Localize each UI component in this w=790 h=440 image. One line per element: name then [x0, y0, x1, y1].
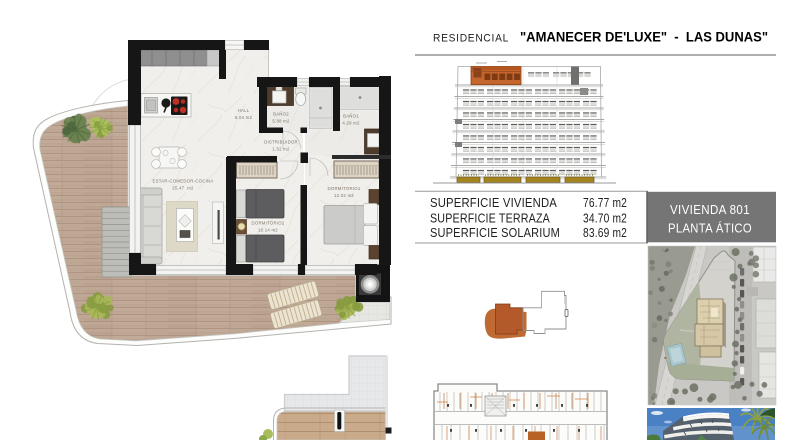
- svg-text:25.47 m2: 25.47 m2: [172, 186, 194, 191]
- svg-text:10.14 m2: 10.14 m2: [258, 228, 278, 233]
- svg-text:HALL: HALL: [238, 108, 250, 113]
- svg-text:4.29 m2: 4.29 m2: [342, 121, 360, 126]
- svg-text:SUPERFICIE SOLARIUM: SUPERFICIE SOLARIUM: [430, 226, 560, 240]
- svg-text:DORMITORIO2: DORMITORIO2: [252, 221, 285, 226]
- svg-text:VIVIENDA 801: VIVIENDA 801: [670, 202, 750, 217]
- svg-text:12.02 m2: 12.02 m2: [334, 193, 354, 198]
- svg-text:ESTAR-COMEDOR-COCINA: ESTAR-COMEDOR-COCINA: [152, 179, 213, 184]
- svg-text:PLANTA ÁTICO: PLANTA ÁTICO: [668, 221, 752, 236]
- svg-text:DISTRIBUIDOR: DISTRIBUIDOR: [264, 140, 298, 145]
- svg-text:DORMITORIO1: DORMITORIO1: [328, 186, 361, 191]
- svg-text:5.04 m2: 5.04 m2: [235, 115, 253, 120]
- svg-text:76.77 m2: 76.77 m2: [583, 196, 627, 210]
- svg-text:RESIDENCIAL: RESIDENCIAL: [433, 33, 509, 45]
- svg-text:83.69 m2: 83.69 m2: [583, 226, 627, 240]
- svg-text:SUPERFICIE TERRAZA: SUPERFICIE TERRAZA: [430, 212, 550, 226]
- svg-text:1.52 m2: 1.52 m2: [272, 147, 290, 152]
- svg-text:SUPERFICIE VIVIENDA: SUPERFICIE VIVIENDA: [430, 196, 557, 210]
- svg-text:34.70 m2: 34.70 m2: [583, 212, 627, 226]
- svg-text:BAÑO2: BAÑO2: [273, 112, 289, 117]
- svg-text:5.88 m2: 5.88 m2: [272, 119, 290, 124]
- svg-text:"AMANECER DE'LUXE" - LAS DUN: "AMANECER DE'LUXE" - LAS DUNAS": [520, 30, 768, 45]
- svg-text:BAÑO1: BAÑO1: [343, 114, 359, 119]
